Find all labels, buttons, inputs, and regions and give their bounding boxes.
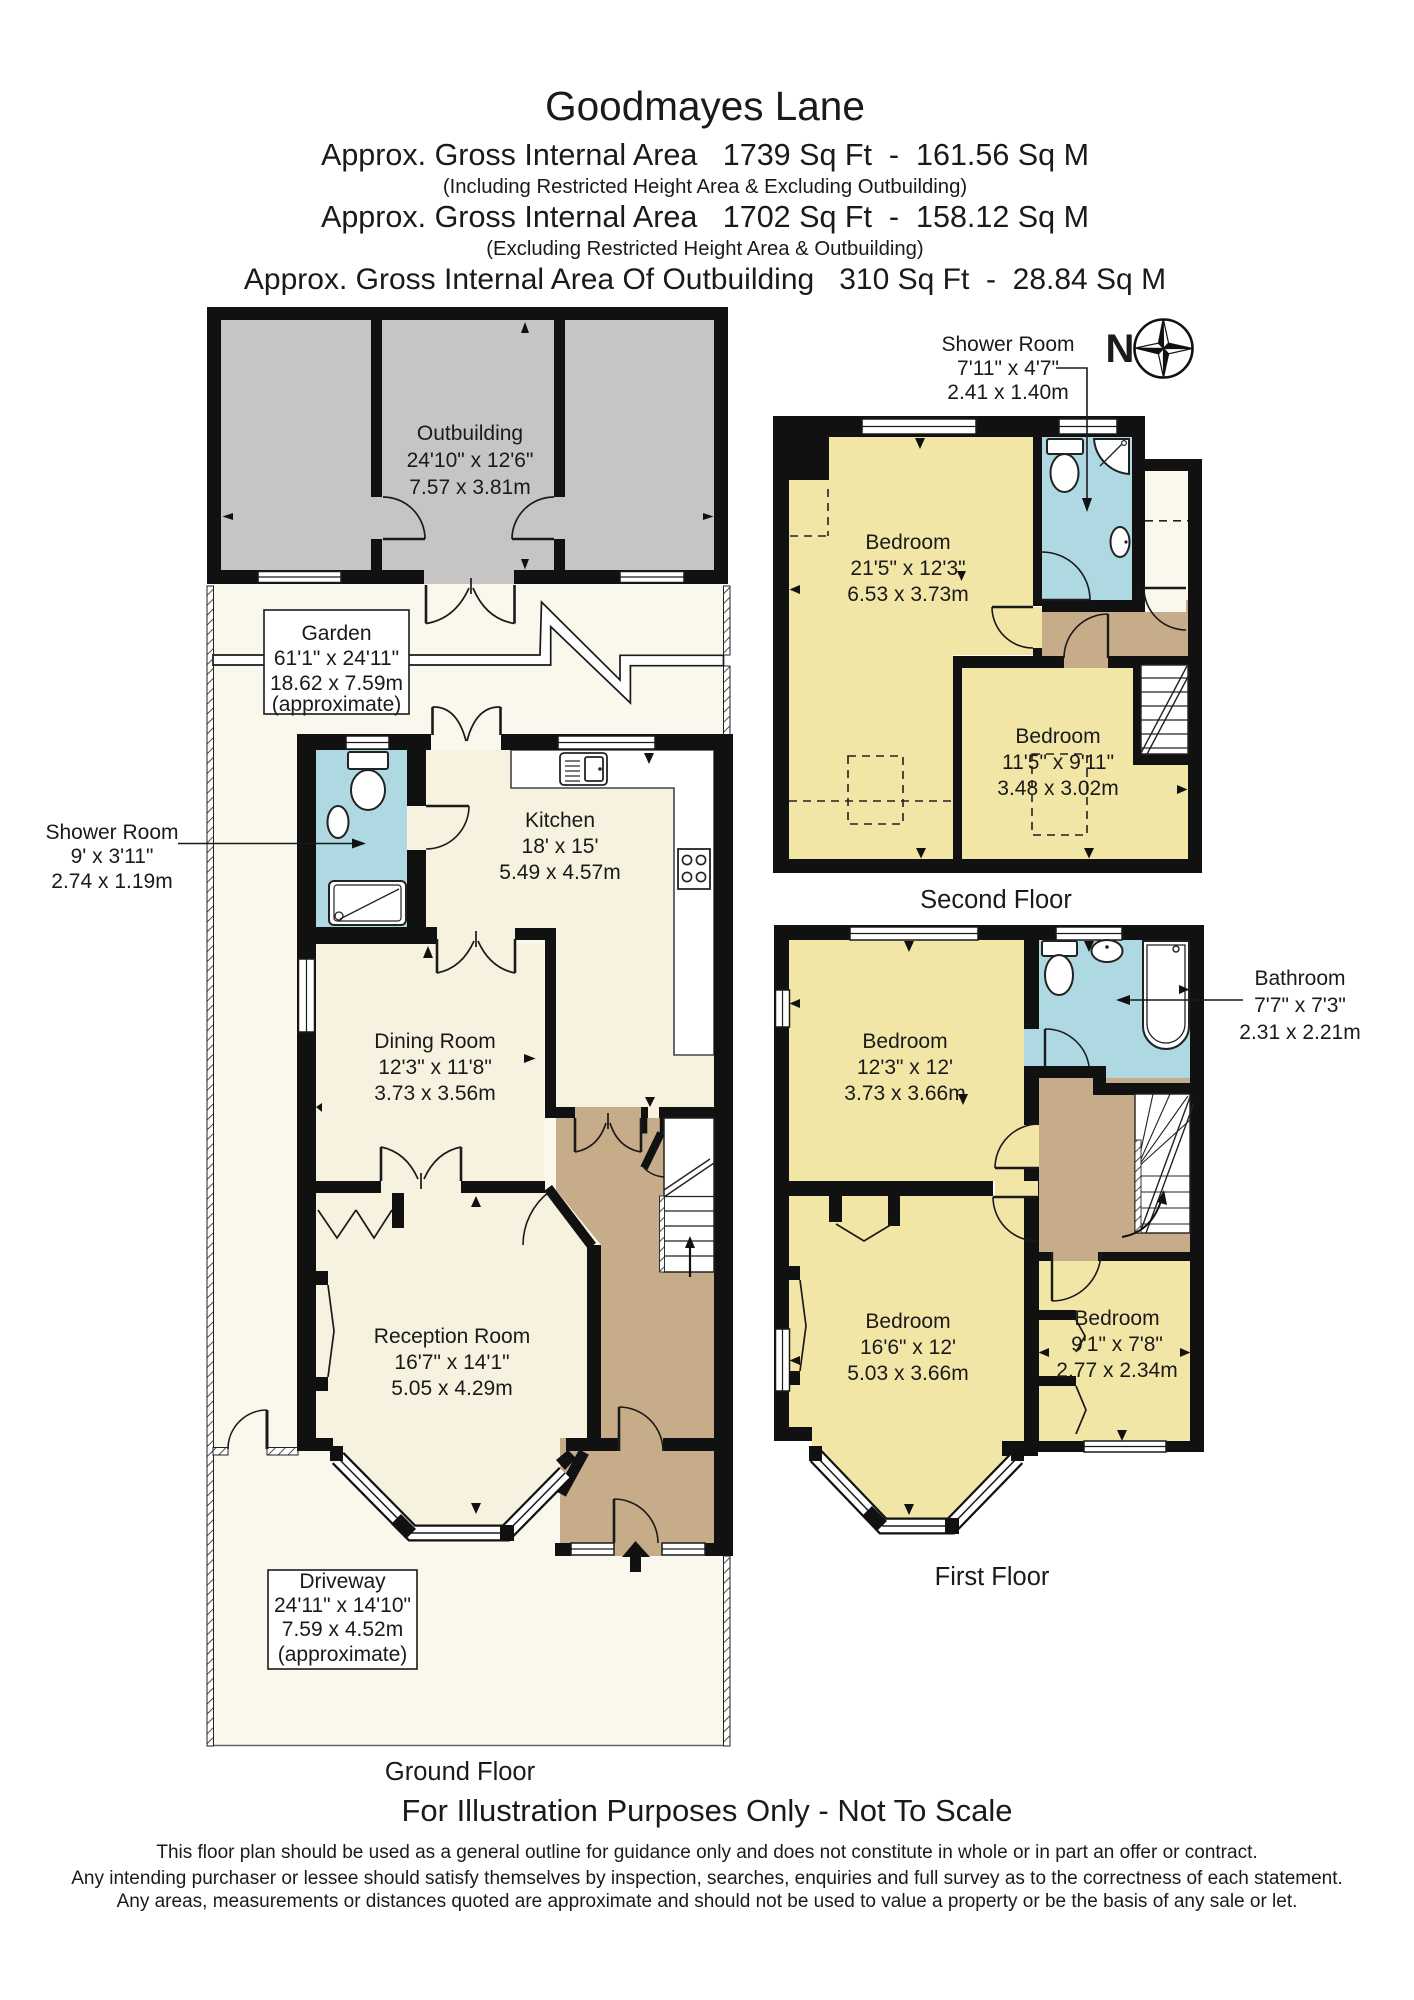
svg-text:9' x 3'11": 9' x 3'11": [71, 845, 154, 868]
svg-text:6.53 x 3.73m: 6.53 x 3.73m: [847, 583, 968, 606]
svg-text:Bedroom: Bedroom: [865, 531, 950, 554]
svg-text:Second Floor: Second Floor: [920, 886, 1072, 914]
svg-text:16'7" x 14'1": 16'7" x 14'1": [394, 1351, 509, 1374]
svg-text:Approx. Gross Internal Area: Approx. Gross Internal Area 1702 Sq Ft -…: [321, 200, 1089, 234]
svg-text:This floor plan should be used: This floor plan should be used as a gene…: [156, 1842, 1257, 1863]
svg-text:Bedroom: Bedroom: [1015, 725, 1100, 748]
svg-text:9'1" x 7'8": 9'1" x 7'8": [1071, 1333, 1163, 1356]
svg-text:7'7" x 7'3": 7'7" x 7'3": [1254, 994, 1346, 1017]
svg-text:18' x 15': 18' x 15': [522, 835, 599, 858]
svg-text:Dining Room: Dining Room: [374, 1030, 495, 1053]
svg-text:Shower Room: Shower Room: [941, 333, 1074, 356]
svg-text:18.62 x 7.59m: 18.62 x 7.59m: [270, 672, 403, 695]
svg-text:N: N: [1106, 327, 1135, 371]
svg-text:2.74 x 1.19m: 2.74 x 1.19m: [51, 870, 172, 893]
svg-text:2.31 x 2.21m: 2.31 x 2.21m: [1239, 1021, 1360, 1044]
svg-text:3.73 x 3.66m: 3.73 x 3.66m: [844, 1082, 965, 1105]
svg-text:2.41 x 1.40m: 2.41 x 1.40m: [947, 381, 1068, 404]
svg-text:7.57 x 3.81m: 7.57 x 3.81m: [409, 476, 530, 499]
svg-text:5.03 x 3.66m: 5.03 x 3.66m: [847, 1362, 968, 1385]
svg-text:16'6" x 12': 16'6" x 12': [860, 1336, 956, 1359]
svg-text:Bathroom: Bathroom: [1254, 967, 1345, 990]
svg-text:Any intending purchaser or les: Any intending purchaser or lessee should…: [71, 1868, 1343, 1889]
svg-text:12'3" x 11'8": 12'3" x 11'8": [378, 1056, 492, 1079]
svg-text:12'3" x 12': 12'3" x 12': [857, 1056, 953, 1079]
svg-text:24'11" x 14'10": 24'11" x 14'10": [274, 1594, 411, 1617]
svg-text:Bedroom: Bedroom: [865, 1310, 950, 1333]
svg-text:5.49 x 4.57m: 5.49 x 4.57m: [499, 861, 620, 884]
svg-text:5.05 x 4.29m: 5.05 x 4.29m: [391, 1377, 512, 1400]
svg-text:Bedroom: Bedroom: [862, 1030, 947, 1053]
svg-text:Approx. Gross Internal Area Of: Approx. Gross Internal Area Of Outbuildi…: [244, 263, 1166, 296]
svg-text:24'10" x 12'6": 24'10" x 12'6": [407, 449, 534, 472]
svg-text:Driveway: Driveway: [299, 1570, 386, 1593]
svg-text:Garden: Garden: [301, 622, 371, 645]
svg-text:(Including Restricted Height A: (Including Restricted Height Area & Excl…: [443, 176, 967, 198]
svg-text:Goodmayes Lane: Goodmayes Lane: [545, 83, 865, 129]
svg-text:3.73 x 3.56m: 3.73 x 3.56m: [374, 1082, 495, 1105]
svg-text:7'11" x 4'7": 7'11" x 4'7": [957, 357, 1059, 380]
svg-text:7.59 x 4.52m: 7.59 x 4.52m: [282, 1618, 403, 1641]
svg-text:Kitchen: Kitchen: [525, 809, 595, 832]
svg-text:Bedroom: Bedroom: [1074, 1307, 1159, 1330]
svg-text:Shower Room: Shower Room: [45, 821, 178, 844]
svg-text:Approx. Gross Internal Area: Approx. Gross Internal Area 1739 Sq Ft -…: [321, 138, 1089, 172]
svg-text:21'5" x 12'3": 21'5" x 12'3": [850, 557, 965, 580]
svg-text:Ground Floor: Ground Floor: [385, 1758, 536, 1786]
svg-text:2.77 x 2.34m: 2.77 x 2.34m: [1056, 1359, 1177, 1382]
svg-text:3.48 x 3.02m: 3.48 x 3.02m: [997, 777, 1118, 800]
svg-text:(approximate): (approximate): [272, 693, 402, 716]
svg-text:11'5" x 9'11": 11'5" x 9'11": [1002, 751, 1114, 774]
svg-text:(Excluding Restricted Height A: (Excluding Restricted Height Area & Outb…: [486, 238, 923, 260]
svg-text:(approximate): (approximate): [278, 1643, 408, 1666]
svg-text:Outbuilding: Outbuilding: [417, 422, 523, 445]
svg-text:61'1" x 24'11": 61'1" x 24'11": [274, 647, 399, 670]
svg-text:Reception Room: Reception Room: [374, 1325, 530, 1348]
svg-text:For Illustration Purposes Only: For Illustration Purposes Only - Not To …: [401, 1793, 1012, 1828]
svg-text:Any areas, measurements or dis: Any areas, measurements or distances quo…: [117, 1891, 1298, 1912]
svg-text:First Floor: First Floor: [935, 1563, 1050, 1591]
